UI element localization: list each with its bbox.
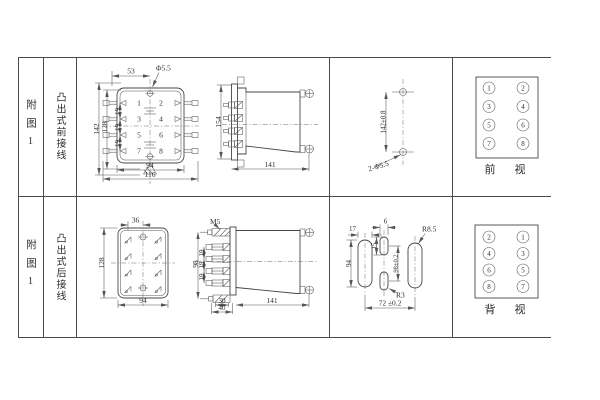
terminal-rear-l3: 6	[487, 266, 491, 274]
front-view-right-pins	[175, 100, 198, 153]
pin-number-3: 3	[137, 115, 141, 124]
row2-cutout-plan: 17 94 6 15 98±0.2 R8.5 R3	[329, 196, 452, 338]
relay-side-view: 154	[214, 77, 318, 171]
terminal-rear-r3: 5	[521, 266, 525, 274]
dim-rear-height: 128	[97, 257, 106, 269]
figure-label-row1: 附图1	[23, 99, 38, 155]
terminal-rear-r1: 1	[521, 233, 525, 241]
dim-slot-length: 94	[345, 260, 353, 268]
terminal-layout-front-view: 1 3 5 7 2 4 6 8 前 视	[476, 77, 538, 176]
dim-stub-outer: 40	[219, 304, 227, 312]
pin-number-5: 5	[137, 131, 141, 140]
drill-hole-callout: 2-Φ5.5	[367, 159, 390, 174]
dim-rear-width: 94	[139, 296, 147, 305]
dim-rear-pitch-a: 19	[198, 249, 206, 257]
dim-vertical-spacing: 98±0.2	[392, 254, 399, 272]
terminal-front-r2: 4	[521, 103, 525, 111]
pin-number-2: 2	[159, 99, 163, 108]
rear-view-caption: 背 视	[485, 302, 530, 316]
dim-horizontal-spacing: 72 ±0.2	[379, 299, 402, 308]
dim-rear-pitch-b: 19	[198, 261, 206, 269]
dim-side-depth: 141	[264, 160, 276, 169]
wiring-type-label-row2: 凸出式后接线	[52, 233, 67, 302]
terminal-rear-l4: 8	[487, 283, 491, 291]
dim-overall-width: 116	[145, 170, 156, 179]
row2-drawings: 36 128 94 M5	[76, 196, 329, 338]
dim-hole-spacing: 142±0.8	[380, 110, 388, 134]
pin-number-7: 7	[137, 147, 141, 156]
terminal-front-l3: 5	[487, 121, 491, 129]
pin-number-4: 4	[159, 115, 163, 124]
panel-drill-plan-front: 142±0.8 2-Φ5.5	[367, 79, 414, 173]
radius-large-callout: R8.5	[422, 225, 437, 234]
dim-top-width: 53	[127, 67, 135, 76]
top-mounting-stud	[208, 229, 231, 237]
row1-terminal-layout: 1 3 5 7 2 4 6 8 前 视	[452, 57, 550, 196]
wiring-type-label-row1: 凸出式前接线	[52, 92, 67, 161]
dim-pitch-c: 19	[114, 140, 122, 148]
dim-small-slot-width: 6	[384, 218, 388, 226]
dim-pitch-b: 19	[114, 124, 122, 132]
terminal-rear-l2: 4	[487, 250, 491, 258]
technical-drawing-sheet: 附图1 凸出式前接线 附图1 凸出式后接线	[0, 0, 600, 400]
hole-callout-front: Φ5.5	[156, 64, 171, 73]
stud-label: M5	[210, 217, 221, 226]
row1-drill-plan: 142±0.8 2-Φ5.5	[329, 57, 452, 196]
figure-label-row2: 附图1	[23, 239, 38, 295]
relay-rear-side-view: M5	[191, 217, 318, 314]
dim-small-slot-length: 15	[371, 242, 379, 250]
dim-pitch-a: 19	[114, 108, 122, 116]
terminal-rear-r4: 7	[521, 283, 525, 291]
row1-drawings: 1 2 3 4 5 6 7 8 53 Φ5.5 142 128 1	[76, 57, 329, 196]
dim-height-inner: 128	[100, 121, 109, 133]
terminal-front-l4: 7	[487, 140, 491, 148]
panel-cutout-plan-rear: 17 94 6 15 98±0.2 R8.5 R3	[345, 218, 437, 312]
side-view-screw-bosses	[300, 90, 314, 154]
dim-rear-pitch-c: 19	[198, 273, 206, 281]
terminal-layout-rear-view: 2 4 6 8 1 3 5 7 背 视	[475, 225, 538, 316]
pin-number-6: 6	[159, 131, 163, 140]
terminal-rear-l1: 2	[487, 233, 491, 241]
dim-center-offset: 36	[132, 216, 140, 225]
terminal-front-r3: 6	[521, 121, 525, 129]
terminal-front-l1: 1	[487, 84, 491, 92]
terminal-rear-r2: 3	[521, 250, 525, 258]
relay-front-view: 1 2 3 4 5 6 7 8 53 Φ5.5 142 128 1	[92, 64, 199, 185]
pin-number-1: 1	[137, 99, 141, 108]
terminal-front-r1: 2	[521, 84, 525, 92]
front-view-caption: 前 视	[485, 162, 530, 176]
dim-rear-depth: 141	[266, 296, 278, 305]
pin-number-8: 8	[159, 147, 163, 156]
dim-body-width: 94	[146, 161, 154, 170]
dim-slot-width: 17	[349, 225, 357, 233]
dim-side-height: 154	[214, 116, 223, 128]
row2-terminal-layout: 2 4 6 8 1 3 5 7 背 视	[452, 196, 550, 338]
relay-rear-body-view: 36 128 94	[97, 216, 175, 309]
terminal-front-l2: 3	[487, 103, 491, 111]
terminal-front-r4: 8	[521, 140, 525, 148]
rear-side-terminals	[206, 244, 230, 287]
